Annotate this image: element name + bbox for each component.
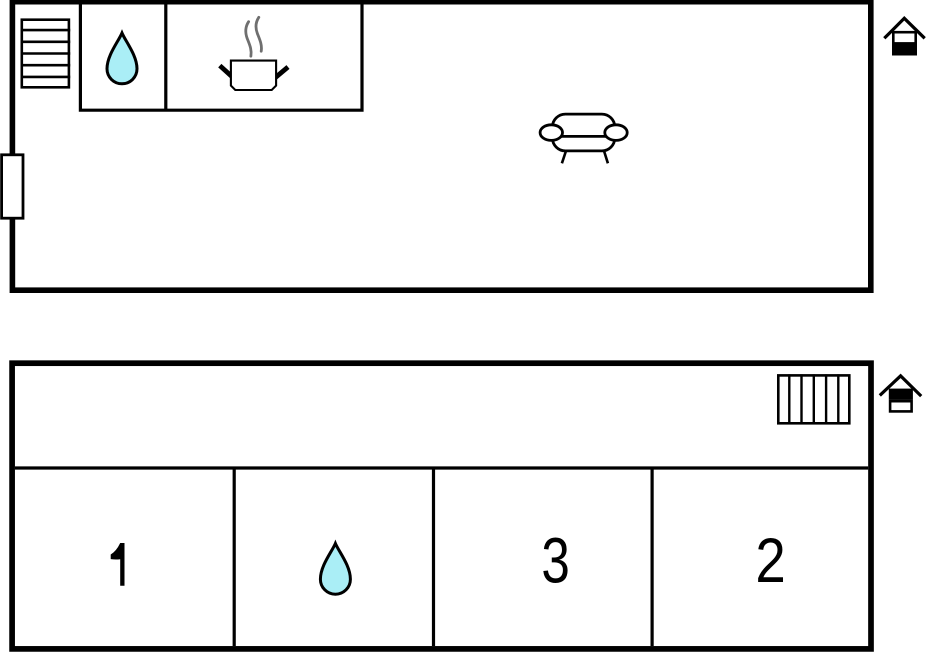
svg-text:2: 2 bbox=[755, 524, 785, 596]
svg-text:3: 3 bbox=[541, 526, 569, 597]
